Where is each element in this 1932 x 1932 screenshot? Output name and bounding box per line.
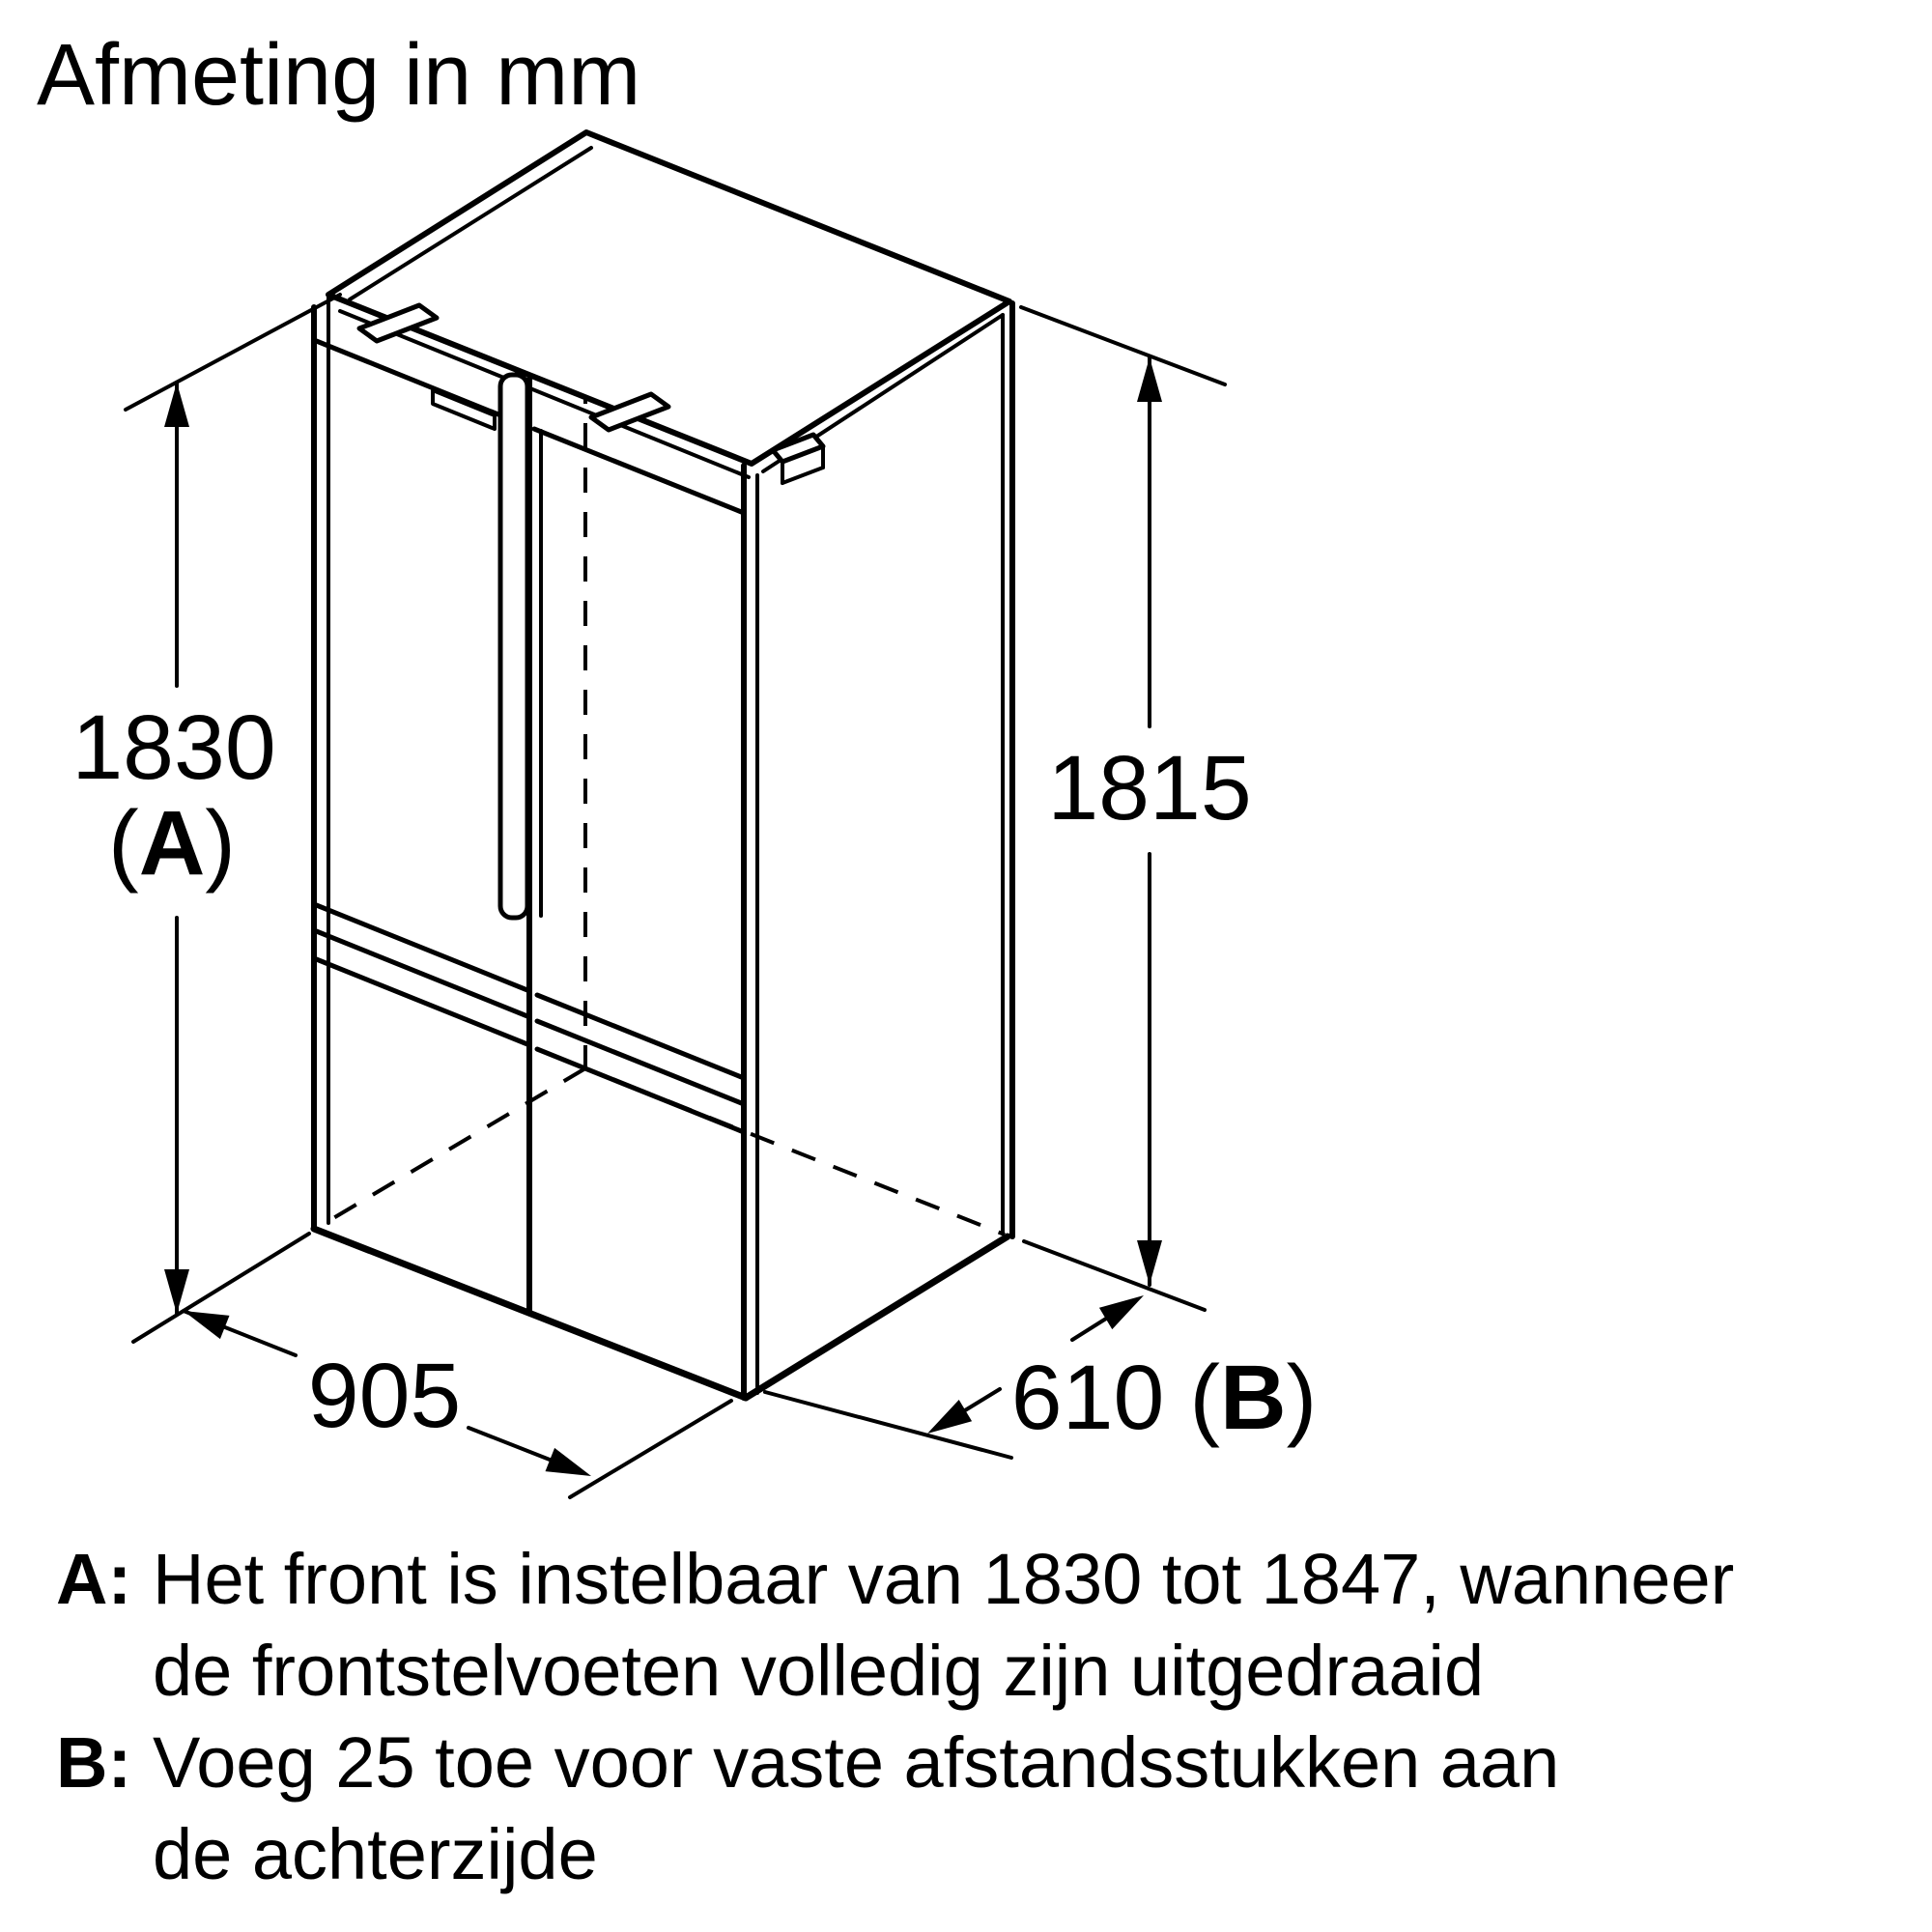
fridge-top-face — [328, 132, 1009, 464]
note-a-line2: de frontstelvoeten volledig zijn uitgedr… — [153, 1631, 1484, 1711]
extension-line-top-right — [1021, 307, 1225, 384]
dimension-front-height: 1830 (A) — [71, 383, 275, 1314]
note-b-label: B: — [56, 1722, 131, 1803]
fridge-dimension-diagram: 1830 (A) 1815 905 610(B) Afmet — [0, 0, 1932, 1932]
arrow-down-icon — [164, 1269, 189, 1314]
dim-front-height-letter: (A) — [108, 792, 236, 895]
note-a-line1: Het front is instelbaar van 1830 tot 184… — [153, 1539, 1734, 1619]
page-title: Afmeting in mm — [37, 27, 640, 124]
hinge-top-right-side-c — [782, 468, 823, 483]
dim-depth-label: 610(B) — [1011, 1347, 1317, 1449]
arrow-up-left-icon — [184, 1311, 230, 1339]
arrow-up-icon — [1137, 357, 1162, 402]
note-b-line1: Voeg 25 toe voor vaste afstandsstukken a… — [153, 1722, 1559, 1803]
fridge-drawing — [314, 132, 1012, 1398]
arrow-down-icon — [1137, 1240, 1162, 1285]
dimension-width: 905 — [184, 1311, 591, 1476]
extension-line-front-corner-right — [765, 1392, 1011, 1458]
extension-line-front-corner-left — [570, 1401, 731, 1497]
door-top-vent-slot — [433, 390, 495, 429]
arrow-down-left-icon — [927, 1400, 972, 1434]
note-a-label: A: — [56, 1539, 131, 1619]
arrow-up-icon — [164, 383, 189, 427]
extension-line-bottom-right — [1024, 1241, 1205, 1310]
left-drawer-gap-line — [314, 904, 527, 990]
dimension-depth: 610(B) — [927, 1295, 1317, 1449]
note-b-line2: de achterzijde — [153, 1814, 598, 1894]
dim-front-height-value: 1830 — [71, 696, 275, 799]
dimension-annotations: 1830 (A) 1815 905 610(B) — [71, 295, 1317, 1497]
arrow-up-right-icon — [1099, 1295, 1144, 1329]
dim-side-height-value: 1815 — [1047, 737, 1251, 839]
bottom-side-edge — [746, 1236, 1008, 1398]
footnotes: A: Het front is instelbaar van 1830 tot … — [56, 1539, 1734, 1894]
dimension-side-height: 1815 — [1047, 357, 1251, 1285]
right-drawer-gap-line — [537, 995, 744, 1078]
hidden-bottom-left-edge — [319, 1068, 585, 1227]
arrow-down-right-icon — [546, 1448, 592, 1476]
dim-width-value: 905 — [308, 1345, 462, 1447]
extension-line-top-left — [126, 295, 340, 410]
door-handle-bar — [500, 375, 527, 918]
dimension-diagram-page: 1830 (A) 1815 905 610(B) Afmet — [0, 0, 1932, 1932]
